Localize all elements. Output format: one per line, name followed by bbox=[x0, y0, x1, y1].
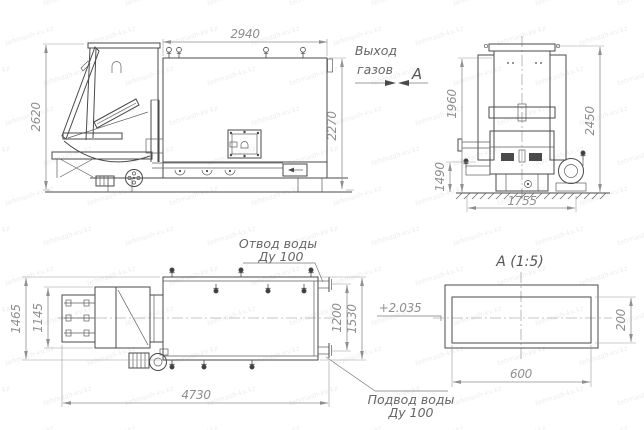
water-outlet-stub bbox=[318, 277, 332, 292]
duct-section-outer bbox=[445, 285, 598, 348]
valve-icon bbox=[177, 47, 182, 58]
gas-outlet-label-1: Выход bbox=[355, 43, 397, 58]
detail-title: А (1:5) bbox=[495, 254, 543, 270]
detail-width-dim: 600 bbox=[510, 367, 533, 381]
pipe-flange bbox=[458, 139, 462, 151]
furnace-body-outline bbox=[163, 58, 327, 162]
side-view: 2620 2940 2270 Выход газов А bbox=[29, 27, 428, 192]
machine-base bbox=[45, 162, 352, 192]
valve-icon bbox=[167, 47, 172, 58]
side-width-dim: 2940 bbox=[230, 27, 260, 41]
front-view: 1960 1490 2450 1755 bbox=[433, 36, 610, 212]
valve-icon bbox=[301, 47, 306, 58]
valve-icon bbox=[301, 284, 306, 293]
valve-icon bbox=[213, 284, 218, 293]
valve-icon bbox=[265, 284, 270, 293]
water-inlet-note: Подвод воды Ду 100 bbox=[326, 357, 455, 420]
detail-view: А (1:5) 600 200 bbox=[433, 254, 636, 387]
valve-icon bbox=[169, 268, 174, 277]
plan-nozzle-spacing-dim: 1200 bbox=[330, 303, 344, 333]
valve-icon bbox=[264, 47, 269, 58]
section-view-arrow bbox=[398, 80, 409, 86]
plan-depth-feeder-dim: 1145 bbox=[31, 303, 45, 332]
lifting-lug-icon bbox=[112, 62, 121, 74]
valve-icon bbox=[249, 360, 254, 369]
feeder-motor bbox=[129, 353, 149, 368]
front-width-base-dim: 1755 bbox=[507, 194, 536, 208]
hatch-door bbox=[228, 130, 261, 158]
valve-icon bbox=[580, 151, 585, 160]
gas-outlet-label-2: газов bbox=[357, 62, 393, 77]
hopper-outline bbox=[52, 43, 163, 178]
plan-view: 1465 1145 1200 1530 4730 bbox=[9, 236, 455, 420]
elevation-value: +2.035 bbox=[379, 301, 422, 315]
section-view-marker: А bbox=[398, 65, 428, 86]
valve-icon bbox=[169, 360, 174, 369]
section-label: А bbox=[411, 65, 422, 83]
side-height-overall-dim: 2620 bbox=[29, 102, 43, 132]
front-height-overall-dim: 2450 bbox=[583, 106, 597, 136]
water-inlet-stub bbox=[318, 343, 332, 358]
blower-fan bbox=[559, 159, 584, 184]
valve-icon bbox=[201, 360, 206, 369]
duct-section-inner bbox=[452, 297, 591, 343]
front-height-block-dim: 1960 bbox=[445, 89, 459, 119]
feeder-plan bbox=[62, 287, 168, 371]
water-outlet-note: Отвод воды Ду 100 bbox=[239, 236, 323, 282]
valve-icon bbox=[238, 268, 243, 277]
plan-length-overall-dim: 4730 bbox=[181, 388, 211, 402]
feeder-fan bbox=[150, 354, 167, 371]
valve-icon bbox=[308, 268, 313, 277]
gas-flow-arrow bbox=[385, 80, 396, 86]
water-inlet-label-2: Ду 100 bbox=[388, 405, 434, 420]
plan-depth-overall-dim: 1465 bbox=[9, 304, 23, 333]
side-height-body-dim: 2270 bbox=[325, 111, 339, 141]
elevation-mark: +2.035 bbox=[377, 301, 441, 321]
engineering-drawing: 2620 2940 2270 Выход газов А bbox=[0, 0, 644, 430]
front-dimensions: 1960 1490 2450 1755 bbox=[433, 46, 604, 212]
gas-outlet-note: Выход газов bbox=[355, 43, 397, 86]
front-height-base-dim: 1490 bbox=[433, 162, 447, 192]
plan-depth-body-dim: 1530 bbox=[345, 304, 359, 334]
drawing-canvas: tehmash-kv.kztehmash-kv.kztehmash-kv.kzt… bbox=[0, 0, 644, 430]
boiler-plan-outline bbox=[163, 277, 318, 360]
water-outlet-label-2: Ду 100 bbox=[258, 249, 304, 264]
detail-dimensions: 600 200 bbox=[452, 297, 636, 387]
detail-height-dim: 200 bbox=[614, 308, 628, 331]
